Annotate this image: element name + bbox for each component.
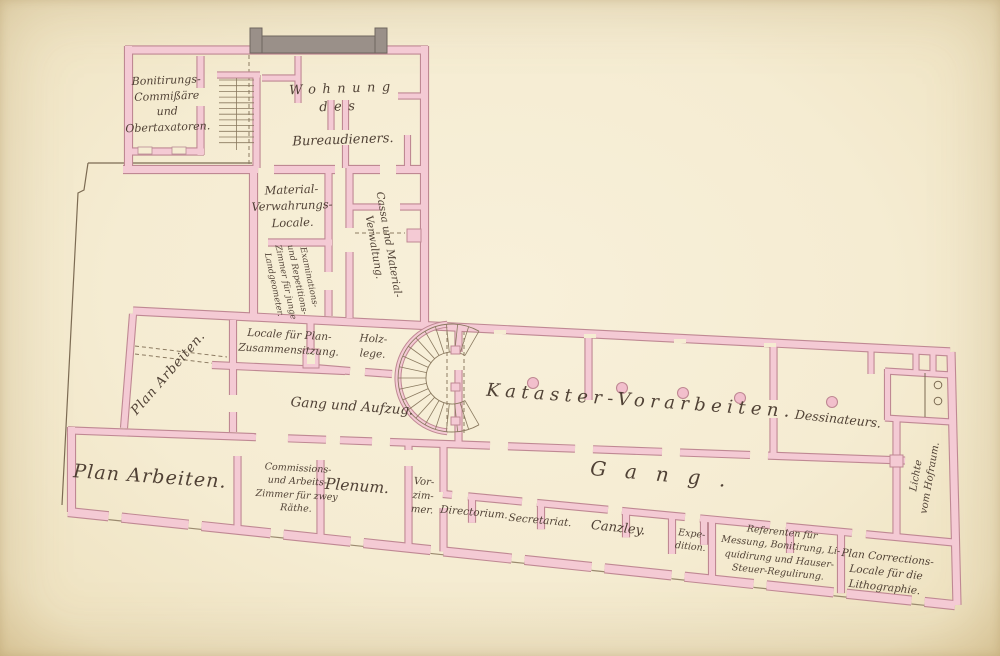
window-notch [584,334,596,338]
wall-segment [68,430,256,437]
spiral-tread [399,367,426,373]
spiral-tread [465,331,479,355]
column [735,393,746,404]
window-sill [912,604,925,605]
wall-segment [288,438,326,439]
window-sill [512,562,525,563]
window-notch [674,339,686,343]
window-notch [494,330,506,334]
window-notch [172,147,186,154]
spiral-tread [425,331,439,355]
column [827,397,838,408]
column [528,378,539,389]
spiral-tread [416,338,435,359]
window-sill [592,570,605,571]
window-sill [672,579,685,580]
window-notch [138,147,152,154]
spiral-tread [416,397,435,418]
wall-segment [443,494,452,495]
landing-post [451,346,460,354]
wall-segment [365,372,392,374]
window-sill [109,520,122,521]
wall-segment [508,446,575,448]
spiral-tread [425,401,439,425]
wall-segment [133,311,950,352]
spiral-tread [399,383,426,389]
wall-segment [593,449,662,451]
floor-plan-drawing [0,0,1000,656]
window-sill [351,545,364,546]
fixture-opening [307,353,315,364]
wall-segment [680,452,750,455]
window-sill [431,553,444,554]
column [678,388,689,399]
window-sill [754,587,767,588]
closet-fixture [934,381,942,389]
wall-segment [866,534,955,542]
masonry-fixture [407,229,421,242]
wall-segment [537,503,608,510]
landing-post [451,417,460,425]
window-sill [834,596,847,597]
window-sill [271,537,284,538]
spiral-tread [465,401,479,425]
wall-segment [68,512,109,516]
entrance-pier [250,28,262,53]
wall-segment [622,511,685,517]
entrance-pier [375,28,387,53]
floor-plan-scan: Bonitirungs- Commißäre und Obertaxatoren… [0,0,1000,656]
wall-segment [390,442,490,446]
entrance-masonry [250,36,387,53]
column [617,383,628,394]
wall-segment [925,602,956,605]
masonry-fixture [890,455,903,467]
dashed-line [135,346,227,357]
spiral-staircase [398,324,479,432]
wall-segment [340,440,372,441]
window-sill [189,528,202,529]
closet-fixture [934,397,942,405]
window-notch [764,343,776,347]
landing-post [451,383,460,391]
spiral-tread [435,403,444,430]
